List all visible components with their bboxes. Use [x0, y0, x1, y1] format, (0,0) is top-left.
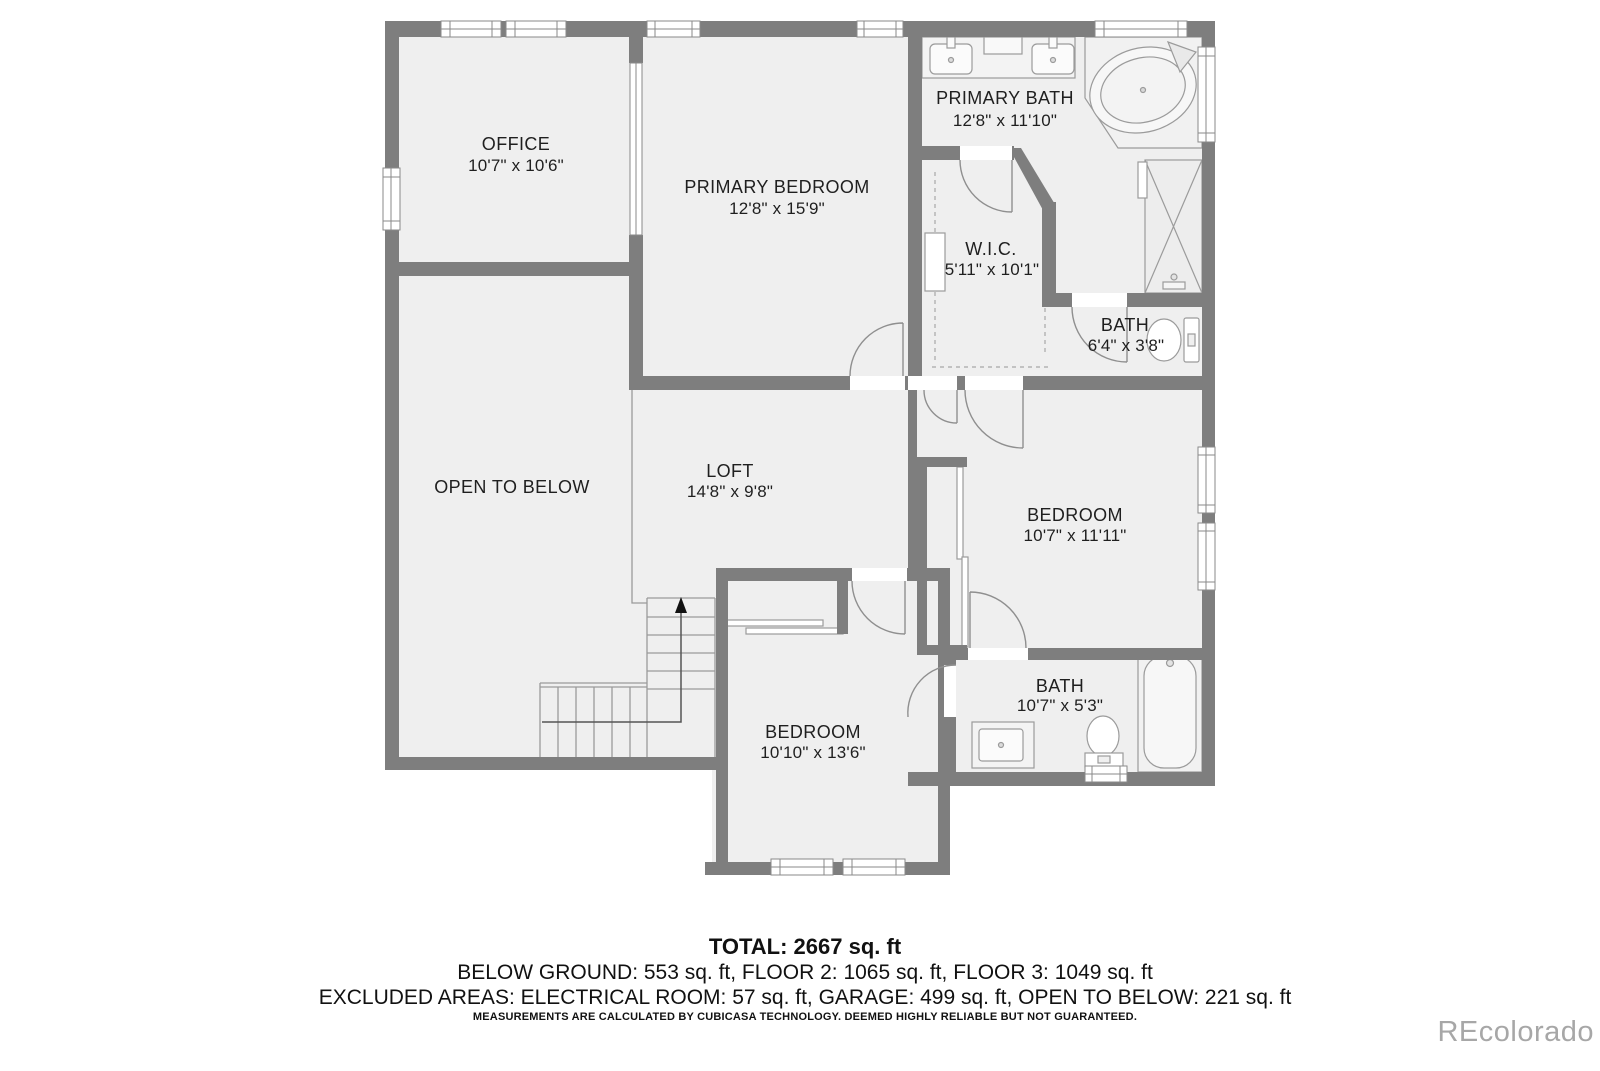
room-label-bottom-bath: BATH [1036, 676, 1084, 696]
hall-closet-slider-1 [957, 467, 963, 559]
wall-pbed-right [908, 33, 922, 390]
closet-slider-1 [726, 620, 823, 626]
floor-bottom-bedroom [710, 565, 948, 870]
recolorado-watermark: REcolorado [1437, 1016, 1594, 1049]
wall-closet-right [837, 568, 848, 634]
opening-hall [908, 376, 957, 390]
disclaimer-text: MEASUREMENTS ARE CALCULATED BY CUBICASA … [10, 1011, 1600, 1023]
room-label-office: OFFICE [482, 134, 550, 154]
room-dims-bedroom-bottom: 10'10" x 13'6" [760, 743, 866, 762]
room-dims-bottom-bath: 10'7" x 5'3" [1017, 696, 1103, 715]
room-dims-wic: 5'11" x 10'1" [945, 260, 1040, 279]
room-label-open-to-below: OPEN TO BELOW [434, 477, 590, 497]
vanity-center-cabinet [984, 37, 1022, 54]
room-label-wic: W.I.C. [965, 239, 1016, 259]
wall-bottom-right [908, 772, 1215, 786]
bathtub-icon [1138, 650, 1202, 772]
opening-bottom-bedroom [852, 568, 907, 581]
wall-office-bottom [385, 262, 629, 276]
hall-closet-slider-2 [962, 557, 968, 647]
wall-corridor [908, 388, 917, 570]
room-label-loft: LOFT [706, 461, 754, 481]
room-label-primary-bedroom: PRIMARY BEDROOM [684, 177, 869, 197]
room-dims-bedroom-right: 10'7" x 11'11" [1024, 526, 1127, 545]
room-dims-loft: 14'8" x 9'8" [687, 482, 773, 501]
wall-open-below-bottom [385, 757, 728, 770]
wall-hallcloset-left [917, 457, 927, 655]
wall-bbed-left [716, 568, 728, 875]
wall-divider-top [629, 33, 643, 63]
room-label-bedroom-right: BEDROOM [1027, 505, 1123, 525]
wall-hallcloset-bottom [917, 645, 967, 655]
floor-plan: OFFICE 10'7" x 10'6" PRIMARY BEDROOM 12'… [0, 0, 1600, 1066]
bottom-bath-vanity [972, 722, 1034, 768]
room-dims-primary-bath: 12'8" x 11'10" [953, 111, 1057, 130]
shower-icon [1138, 160, 1202, 293]
exterior-notch [380, 770, 712, 890]
room-dims-primary-bedroom: 12'8" x 15'9" [729, 199, 825, 218]
room-label-primary-bath: PRIMARY BATH [936, 88, 1074, 108]
opening-small-bath [1072, 293, 1127, 307]
wall-left [385, 21, 399, 770]
opening-primary-bedroom [850, 376, 905, 390]
wall-divider-bottom [629, 235, 643, 390]
opening-bedroom-ensuite [968, 648, 1028, 660]
opening-wic [960, 146, 1012, 160]
wall-wic-right [1042, 202, 1056, 307]
total-area-text: TOTAL: 2667 sq. ft [10, 934, 1600, 960]
opening-bedroom [965, 376, 1023, 390]
excluded-areas-text: EXCLUDED AREAS: ELECTRICAL ROOM: 57 sq. … [10, 986, 1600, 1010]
closet-slider-2 [746, 628, 843, 634]
floor-areas-text: BELOW GROUND: 553 sq. ft, FLOOR 2: 1065 … [10, 961, 1600, 985]
wall-hallcloset-top [917, 457, 967, 467]
room-dims-small-bath: 6'4" x 3'8" [1088, 336, 1165, 355]
opening-bottom-bath [944, 665, 956, 717]
room-dims-office: 10'7" x 10'6" [468, 156, 564, 175]
room-label-bedroom-bottom: BEDROOM [765, 722, 861, 742]
floor-plan-page: OFFICE 10'7" x 10'6" PRIMARY BEDROOM 12'… [0, 0, 1600, 1066]
wic-shelf [925, 233, 945, 291]
room-label-small-bath: BATH [1101, 315, 1149, 335]
